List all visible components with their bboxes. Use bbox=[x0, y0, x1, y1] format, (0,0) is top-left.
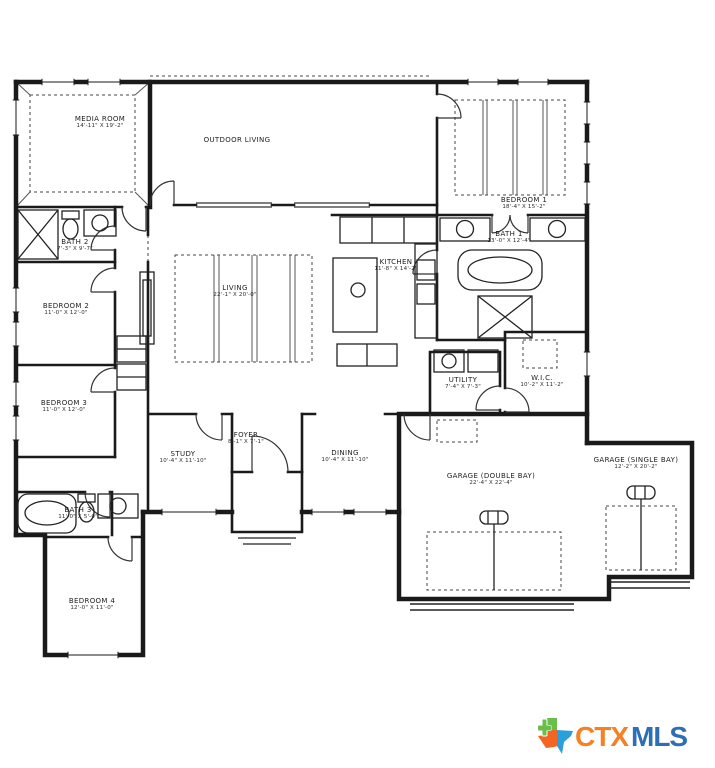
room-label-kitchen: KITCHEN 11'-8" X 14'-2" bbox=[374, 258, 417, 273]
room-name: W.I.C. bbox=[520, 374, 563, 382]
floorplan-page: { "rooms": [ {"name":"MEDIA ROOM","dims"… bbox=[0, 0, 715, 768]
room-dims: 18'-4" X 15'-2" bbox=[501, 204, 547, 211]
room-dims: 7'-4" X 7'-3" bbox=[445, 384, 481, 391]
room-label-bedroom-2: BEDROOM 2 11'-0" X 12'-0" bbox=[43, 302, 89, 317]
room-label-bath-3: BATH 3 11'-0" X 5'-0" bbox=[58, 506, 98, 521]
room-name: BATH 3 bbox=[58, 506, 98, 514]
texas-icon bbox=[538, 718, 573, 754]
room-name: GARAGE (SINGLE BAY) bbox=[594, 456, 679, 464]
room-name: GARAGE (DOUBLE BAY) bbox=[447, 472, 535, 480]
room-label-bedroom-3: BEDROOM 3 11'-0" X 12'-0" bbox=[41, 399, 87, 414]
room-label-study: STUDY 10'-4" X 11'-10" bbox=[159, 450, 206, 465]
windows bbox=[13, 79, 590, 658]
room-name: OUTDOOR LIVING bbox=[204, 136, 271, 144]
room-dims: 22'-1" X 20'-0" bbox=[213, 292, 256, 299]
ctxmls-logo-graphic: CTX MLS bbox=[535, 714, 707, 756]
room-name: BATH 1 bbox=[487, 230, 530, 238]
room-dims: 12'-0" X 11'-0" bbox=[69, 605, 115, 612]
room-name: BEDROOM 3 bbox=[41, 399, 87, 407]
logo-text-mls: MLS bbox=[631, 721, 687, 752]
room-dims: 10'-2" X 11'-2" bbox=[520, 382, 563, 389]
room-dims: 11'-0" X 12'-0" bbox=[43, 310, 89, 317]
room-dims: 14'-11" X 19'-2" bbox=[75, 123, 125, 130]
room-name: UTILITY bbox=[445, 376, 481, 384]
room-dims: 12'-2" X 20'-2" bbox=[594, 464, 679, 471]
room-dims: 11'-0" X 12'-0" bbox=[41, 407, 87, 414]
room-name: BATH 2 bbox=[57, 238, 93, 246]
room-name: BEDROOM 4 bbox=[69, 597, 115, 605]
room-name: STUDY bbox=[159, 450, 206, 458]
room-label-bath-1: BATH 1 13'-0" X 12'-4" bbox=[487, 230, 530, 245]
room-dims: 7'-3" X 9'-7" bbox=[57, 246, 93, 253]
room-dims: 13'-0" X 12'-4" bbox=[487, 238, 530, 245]
ctxmls-logo: CTX MLS bbox=[535, 714, 707, 760]
room-dims: 8'-1" X 7'-1" bbox=[228, 439, 264, 446]
room-name: FOYER bbox=[228, 431, 264, 439]
room-dims: 11'-0" X 5'-0" bbox=[58, 514, 98, 521]
room-dims: 10'-4" X 11'-10" bbox=[159, 458, 206, 465]
room-label-media-room: MEDIA ROOM 14'-11" X 19'-2" bbox=[75, 115, 125, 130]
room-name: KITCHEN bbox=[374, 258, 417, 266]
room-name: DINING bbox=[321, 449, 368, 457]
logo-text-ctx: CTX bbox=[575, 721, 629, 752]
room-dims: 11'-8" X 14'-2" bbox=[374, 266, 417, 273]
room-label-outdoor-living: OUTDOOR LIVING bbox=[204, 136, 271, 144]
room-label-bedroom-4: BEDROOM 4 12'-0" X 11'-0" bbox=[69, 597, 115, 612]
room-name: LIVING bbox=[213, 284, 256, 292]
room-label-living: LIVING 22'-1" X 20'-0" bbox=[213, 284, 256, 299]
room-dims: 22'-4" X 22'-4" bbox=[447, 480, 535, 487]
room-label-bedroom-1: BEDROOM 1 18'-4" X 15'-2" bbox=[501, 196, 547, 211]
room-name: MEDIA ROOM bbox=[75, 115, 125, 123]
interior-walls bbox=[16, 82, 587, 537]
room-label-bath-2: BATH 2 7'-3" X 9'-7" bbox=[57, 238, 93, 253]
room-label-garage-single-bay: GARAGE (SINGLE BAY) 12'-2" X 20'-2" bbox=[594, 456, 679, 471]
room-label-wic: W.I.C. 10'-2" X 11'-2" bbox=[520, 374, 563, 389]
room-label-dining: DINING 10'-4" X 11'-10" bbox=[321, 449, 368, 464]
room-label-utility: UTILITY 7'-4" X 7'-3" bbox=[445, 376, 481, 391]
room-dims: 10'-4" X 11'-10" bbox=[321, 457, 368, 464]
room-name: BEDROOM 2 bbox=[43, 302, 89, 310]
room-label-garage-double-bay: GARAGE (DOUBLE BAY) 22'-4" X 22'-4" bbox=[447, 472, 535, 487]
room-label-foyer: FOYER 8'-1" X 7'-1" bbox=[228, 431, 264, 446]
room-name: BEDROOM 1 bbox=[501, 196, 547, 204]
